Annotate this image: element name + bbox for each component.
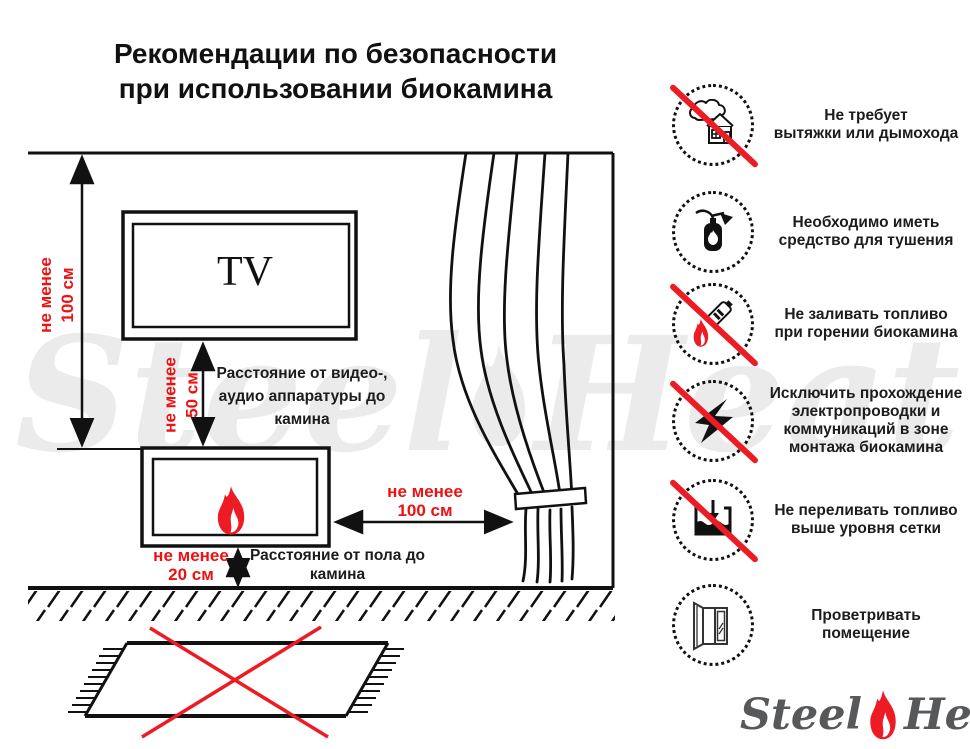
no-wiring-icon xyxy=(672,380,754,462)
no-chimney-icon xyxy=(672,84,754,166)
carpet-fringe-left xyxy=(68,649,123,712)
no-refuel-while-burning-icon xyxy=(672,283,754,365)
tv-distance-label: Расстояние от видео-, аудио аппаратуры д… xyxy=(212,362,392,431)
ventilate-icon xyxy=(672,584,754,666)
floor-hatching xyxy=(28,591,615,621)
logo-flame-icon xyxy=(864,689,902,741)
safety-infographic: Steel Heat xyxy=(0,0,970,749)
no-overfill-icon xyxy=(672,479,754,561)
safety-item-no-overfill: Не переливать топливо выше уровня сетки xyxy=(672,479,968,561)
curtain-tieback xyxy=(515,488,586,509)
open-window-glyph xyxy=(687,599,739,651)
tv-label: TV xyxy=(195,248,295,296)
safety-item-text: Исключить прохождение электропроводки и … xyxy=(764,385,968,457)
safety-item-text: Необходимо иметь средство для тушения xyxy=(764,214,968,250)
logo-steel-text: Steel xyxy=(740,686,862,744)
safety-item-no-chimney: Не требует вытяжки или дымохода xyxy=(672,84,968,166)
carpet xyxy=(68,627,404,737)
safety-item-text: Не переливать топливо выше уровня сетки xyxy=(764,502,968,538)
safety-item-text: Проветривать помещение xyxy=(764,607,968,643)
fireplace-box xyxy=(142,448,329,546)
logo-heat-text: Heat xyxy=(904,686,970,744)
safety-item-no-wiring: Исключить прохождение электропроводки и … xyxy=(672,380,968,462)
safety-item-extinguisher: Необходимо иметь средство для тушения xyxy=(672,191,968,273)
safety-item-text: Не заливать топливо при горении биокамин… xyxy=(764,306,968,342)
page-title: Рекомендации по безопасности при использ… xyxy=(28,36,643,106)
dim-label-50cm: не менее 50 см xyxy=(160,348,204,443)
dim-label-100cm-vertical: не менее 100 см xyxy=(35,250,79,340)
safety-item-text: Не требует вытяжки или дымохода xyxy=(764,107,968,143)
safety-item-no-refuel: Не заливать топливо при горении биокамин… xyxy=(672,283,968,365)
dim-label-100cm-horizontal: не менее 100 см xyxy=(366,482,484,520)
steelheat-logo: Steel Heat xyxy=(740,686,970,744)
safety-item-ventilate: Проветривать помещение xyxy=(672,584,968,666)
floor-distance-label: Расстояние от пола до камина xyxy=(250,546,425,584)
carpet-fringe-right xyxy=(348,649,404,712)
fire-extinguisher-icon xyxy=(672,191,754,273)
dim-label-20cm: не менее 20 см xyxy=(148,546,234,584)
extinguisher-glyph xyxy=(687,206,739,258)
